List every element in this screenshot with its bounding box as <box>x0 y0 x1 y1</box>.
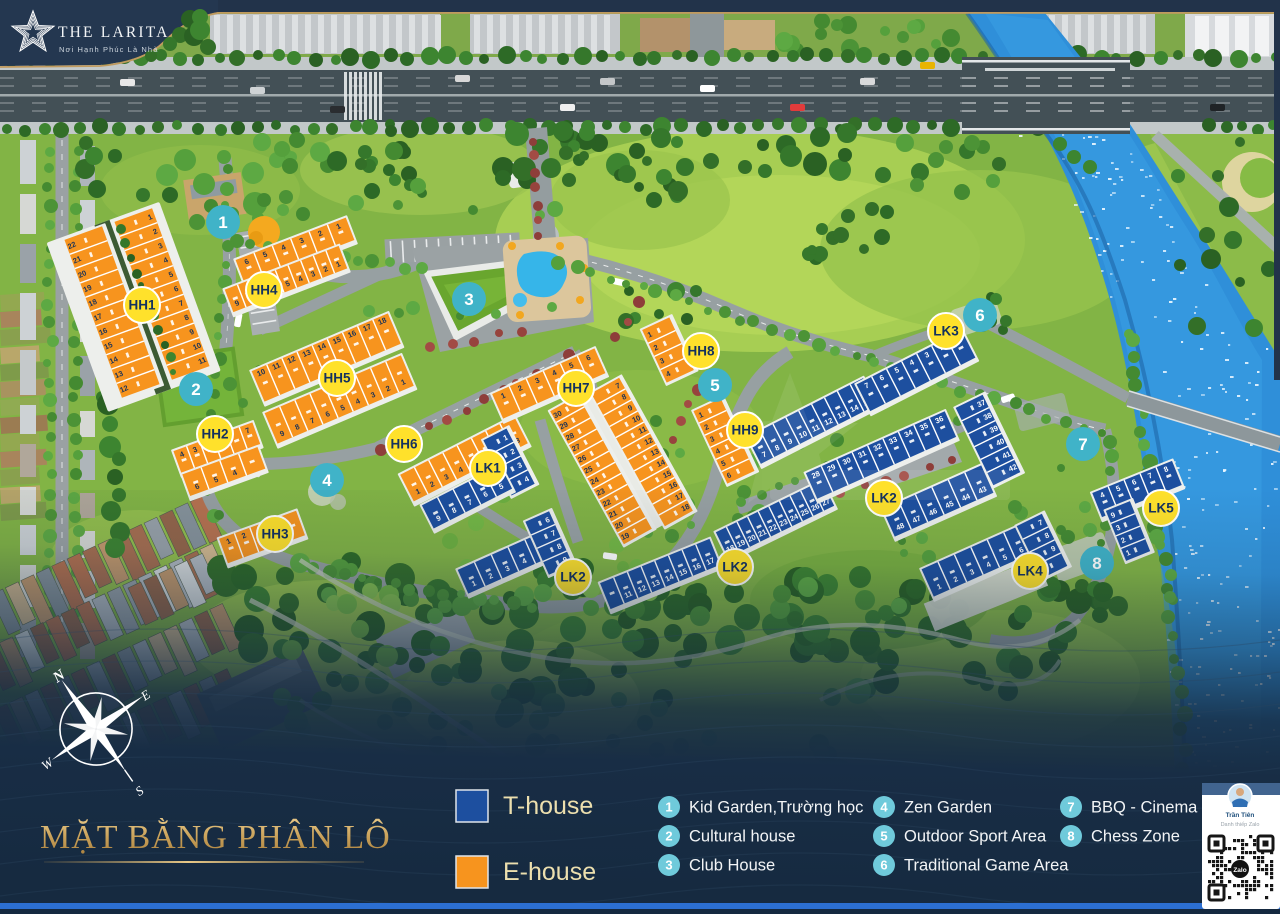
svg-text:2: 2 <box>665 829 672 844</box>
svg-text:HH9: HH9 <box>731 423 758 438</box>
svg-text:HH4: HH4 <box>250 283 277 298</box>
svg-text:Kid Garden,Trường học: Kid Garden,Trường học <box>689 799 863 817</box>
svg-text:5: 5 <box>710 376 719 395</box>
svg-text:E-house: E-house <box>503 858 596 886</box>
svg-text:HH7: HH7 <box>562 381 589 396</box>
svg-text:3: 3 <box>665 858 672 873</box>
svg-text:4: 4 <box>880 800 888 815</box>
svg-text:HH5: HH5 <box>323 371 350 386</box>
svg-text:Traditional Game Area: Traditional Game Area <box>904 857 1069 875</box>
svg-text:Cultural house: Cultural house <box>689 828 795 846</box>
svg-text:7: 7 <box>1078 435 1087 454</box>
svg-text:1: 1 <box>665 800 672 815</box>
svg-text:MẶT BẰNG PHÂN LÔ: MẶT BẰNG PHÂN LÔ <box>40 818 391 856</box>
svg-text:T-house: T-house <box>503 792 593 820</box>
svg-text:1: 1 <box>218 213 227 232</box>
svg-text:HH1: HH1 <box>128 298 155 313</box>
svg-text:Outdoor Sport Area: Outdoor Sport Area <box>904 828 1047 846</box>
svg-text:Danh thiếp Zalo: Danh thiếp Zalo <box>1221 822 1260 828</box>
svg-text:5: 5 <box>880 829 887 844</box>
svg-text:6: 6 <box>880 858 887 873</box>
svg-text:4: 4 <box>322 471 332 490</box>
svg-text:HH2: HH2 <box>201 427 228 442</box>
svg-text:HH6: HH6 <box>390 437 417 452</box>
svg-text:HH8: HH8 <box>687 344 714 359</box>
svg-text:6: 6 <box>975 306 984 325</box>
svg-text:2: 2 <box>191 380 200 399</box>
svg-text:3: 3 <box>464 290 473 309</box>
svg-text:Zalo: Zalo <box>1233 867 1246 874</box>
svg-text:Nơi Hạnh Phúc Là Nhà: Nơi Hạnh Phúc Là Nhà <box>59 45 158 54</box>
svg-text:8: 8 <box>1067 829 1074 844</box>
svg-text:LK3: LK3 <box>933 324 959 339</box>
svg-text:LK1: LK1 <box>475 461 501 476</box>
svg-text:Chess Zone: Chess Zone <box>1091 828 1180 846</box>
svg-text:Club House: Club House <box>689 857 775 875</box>
svg-text:THE LARITA: THE LARITA <box>58 24 170 41</box>
svg-text:7: 7 <box>1067 800 1074 815</box>
svg-text:Zen Garden: Zen Garden <box>904 799 992 817</box>
svg-text:Trần Tiên: Trần Tiên <box>1226 810 1255 819</box>
